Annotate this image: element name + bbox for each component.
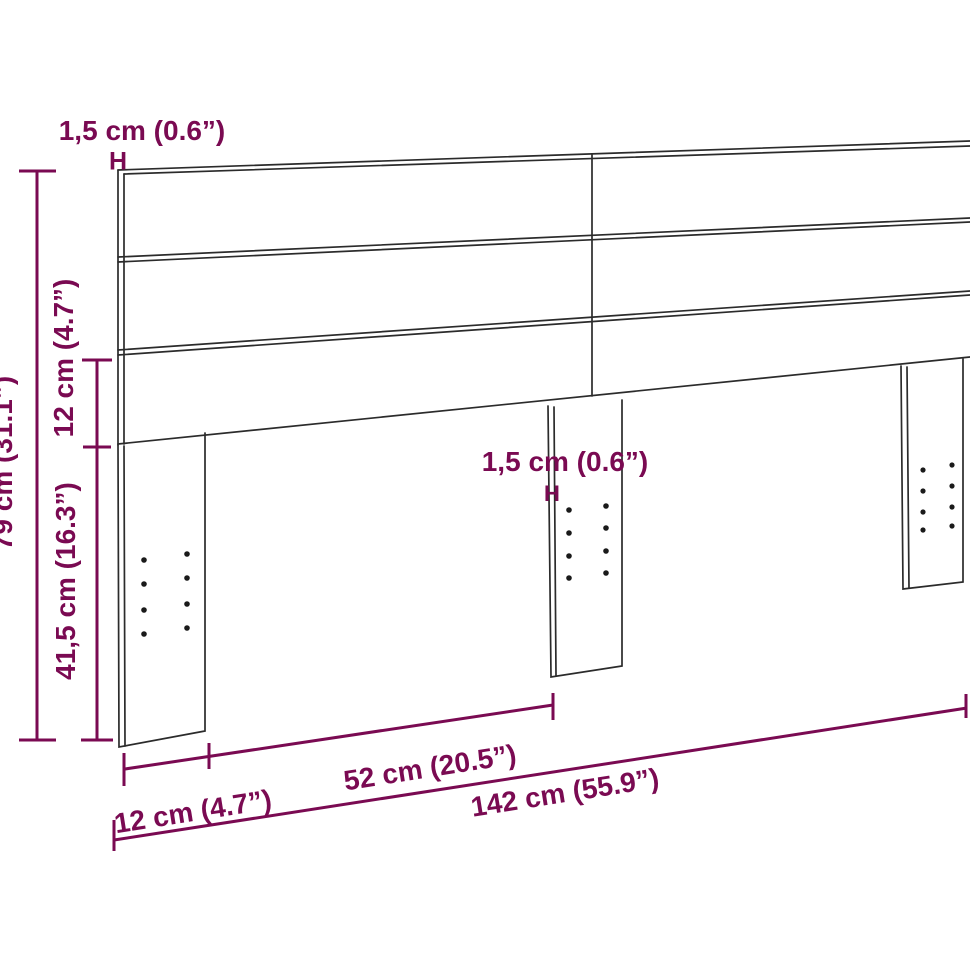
headboard-dimension-diagram: 1,5 cm (0.6”) H 79 cm (31.1”) 12 cm (4.7…	[0, 0, 970, 970]
headboard-legs	[118, 359, 963, 747]
label-top-thickness: 1,5 cm (0.6”)	[59, 117, 226, 145]
right-leg-edge	[907, 367, 909, 588]
label-leg-height: 41,5 cm (16.3”)	[52, 482, 80, 680]
panel-top-edge	[118, 141, 970, 170]
panel-bottom-edge	[118, 357, 970, 444]
right-leg-outline	[901, 359, 963, 589]
top-thickness-marker: H	[109, 150, 127, 175]
dim-line-total-width	[114, 708, 967, 840]
slat-gap-1-upper	[118, 218, 970, 257]
label-middle-thickness: 1,5 cm (0.6”)	[482, 448, 649, 476]
headboard-panel	[118, 141, 970, 445]
left-leg-outline	[118, 433, 205, 747]
middle-leg-outline	[548, 400, 622, 677]
panel-top-edge-inner	[124, 146, 970, 174]
middle-thickness-marker: H	[544, 483, 560, 505]
slat-gap-1-lower	[118, 222, 970, 262]
label-bottom-slat-height: 12 cm (4.7”)	[50, 279, 78, 438]
left-leg-edge	[124, 446, 125, 746]
label-total-height: 79 cm (31.1”)	[0, 376, 17, 550]
slat-gap-2-lower	[118, 295, 970, 355]
slat-gap-2-upper	[118, 291, 970, 350]
